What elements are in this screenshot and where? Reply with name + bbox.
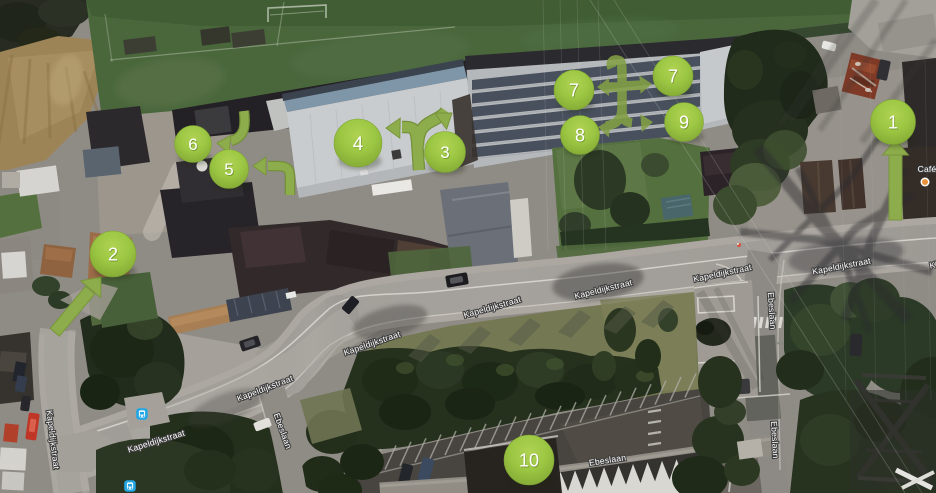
svg-text:2: 2 bbox=[108, 244, 118, 264]
svg-text:6: 6 bbox=[188, 135, 197, 154]
svg-text:3: 3 bbox=[440, 143, 449, 162]
svg-text:Ebeslaan: Ebeslaan bbox=[769, 421, 781, 459]
svg-text:9: 9 bbox=[679, 112, 689, 132]
svg-text:4: 4 bbox=[353, 134, 364, 155]
svg-text:10: 10 bbox=[519, 450, 539, 470]
svg-text:8: 8 bbox=[575, 125, 585, 145]
svg-text:Café: Café bbox=[918, 164, 936, 174]
svg-text:7: 7 bbox=[668, 66, 678, 86]
svg-text:5: 5 bbox=[224, 160, 233, 179]
svg-text:1: 1 bbox=[888, 112, 898, 132]
svg-text:7: 7 bbox=[569, 80, 579, 100]
